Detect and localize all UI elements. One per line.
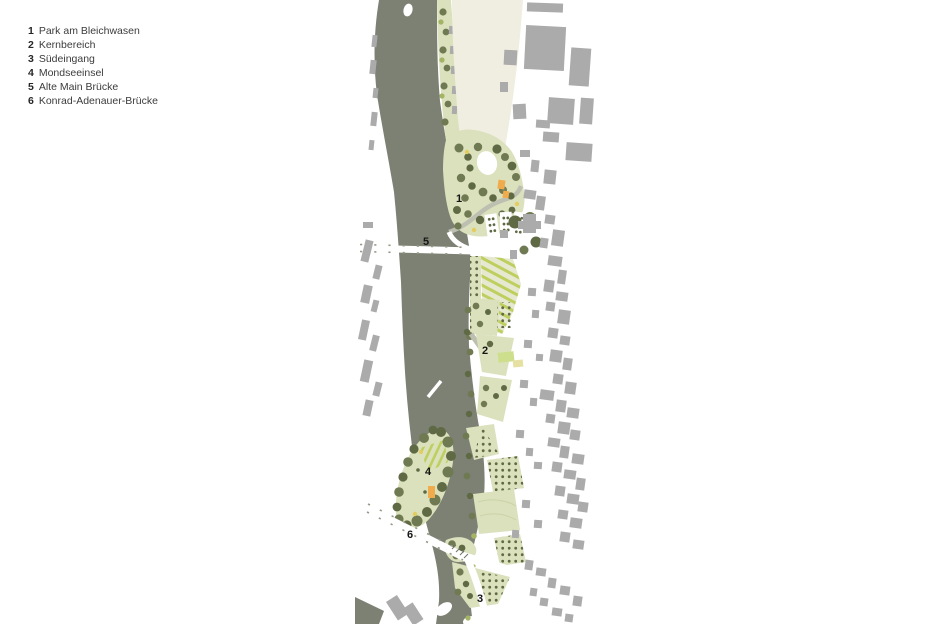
legend-number: 3 bbox=[28, 52, 34, 66]
map-marker-3: 3 bbox=[477, 593, 483, 605]
map-marker-5: 5 bbox=[423, 236, 429, 248]
legend-item-2: 2 Kernbereich bbox=[28, 38, 158, 52]
map-marker-6: 6 bbox=[407, 529, 413, 541]
island-building bbox=[428, 486, 435, 498]
legend-number: 2 bbox=[28, 38, 34, 52]
map-marker-2: 2 bbox=[482, 345, 488, 357]
legend-number: 5 bbox=[28, 80, 34, 94]
site-plan-page: 1 2 3 4 5 6 1 Park am Bleichwasen 2 Kern… bbox=[0, 0, 936, 624]
legend-label: Alte Main Brücke bbox=[39, 80, 118, 94]
map-marker-1: 1 bbox=[456, 193, 462, 205]
legend: 1 Park am Bleichwasen 2 Kernbereich 3 Sü… bbox=[28, 24, 158, 108]
legend-number: 6 bbox=[28, 94, 34, 108]
legend-number: 4 bbox=[28, 66, 34, 80]
legend-label: Kernbereich bbox=[39, 38, 96, 52]
legend-label: Park am Bleichwasen bbox=[39, 24, 140, 38]
park-am-bleichwasen bbox=[443, 129, 525, 249]
river-backwater bbox=[355, 597, 384, 624]
legend-item-5: 5 Alte Main Brücke bbox=[28, 80, 158, 94]
legend-label: Mondseeinsel bbox=[39, 66, 104, 80]
legend-label: Konrad-Adenauer-Brücke bbox=[39, 94, 158, 108]
park-pavilion bbox=[497, 180, 505, 190]
legend-item-1: 1 Park am Bleichwasen bbox=[28, 24, 158, 38]
legend-item-4: 4 Mondseeinsel bbox=[28, 66, 158, 80]
legend-number: 1 bbox=[28, 24, 34, 38]
legend-item-6: 6 Konrad-Adenauer-Brücke bbox=[28, 94, 158, 108]
map-marker-4: 4 bbox=[425, 466, 432, 478]
legend-label: Südeingang bbox=[39, 52, 95, 66]
legend-item-3: 3 Südeingang bbox=[28, 52, 158, 66]
